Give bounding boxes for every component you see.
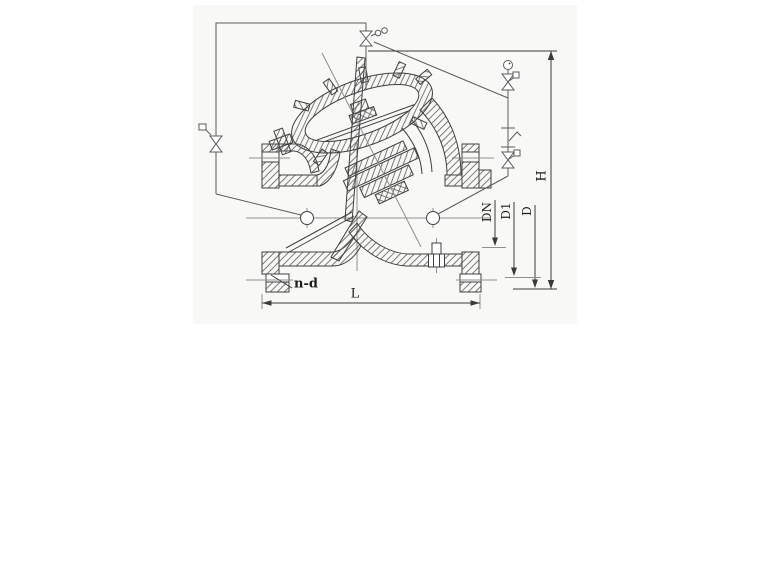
dim-label-DN: DN: [481, 202, 493, 222]
valve-engineering-drawing: H DN D1 D L n-d: [0, 0, 778, 588]
pressure-gauge-icon: [504, 61, 513, 70]
dim-label-D: D: [521, 206, 533, 216]
dim-label-L: L: [351, 288, 360, 301]
dim-label-n-d: n-d: [294, 278, 318, 291]
drawing-canvas: [0, 0, 778, 588]
dim-label-D1: D1: [500, 202, 512, 219]
outlet-top-wall: [445, 175, 462, 186]
dim-label-H: H: [536, 170, 549, 181]
inlet-top-wall: [279, 175, 317, 186]
